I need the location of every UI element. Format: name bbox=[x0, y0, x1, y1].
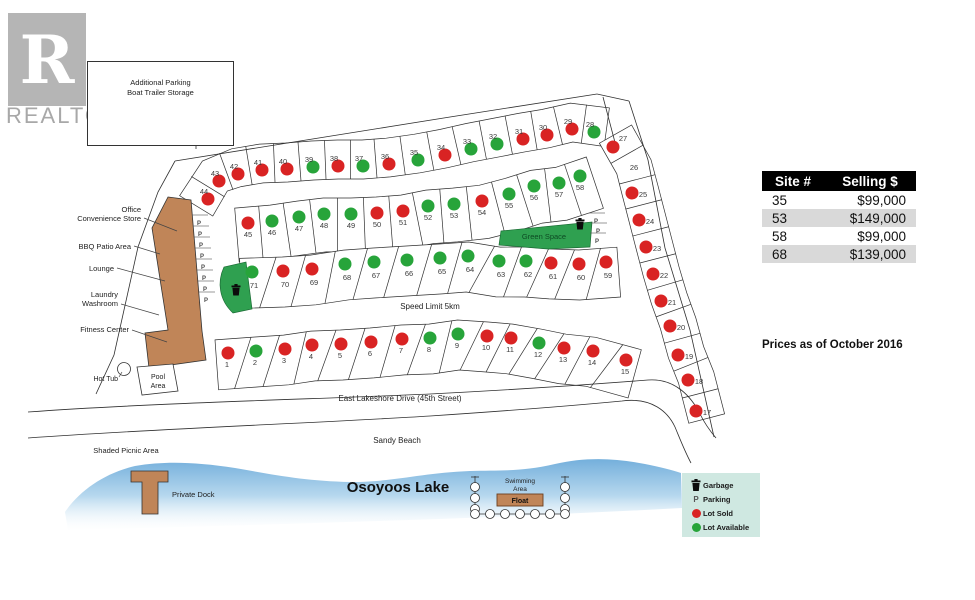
lot-number: 4 bbox=[309, 352, 313, 361]
lot-number: 33 bbox=[463, 137, 471, 146]
lot-status-dot bbox=[690, 405, 703, 418]
lounge-label: Lounge bbox=[89, 264, 114, 273]
lot-number: 24 bbox=[646, 217, 654, 226]
lot-status-dot bbox=[401, 254, 414, 267]
parking-icon: P bbox=[594, 219, 598, 225]
lot-number: 66 bbox=[405, 269, 413, 278]
additional-parking-line1: Additional Parking bbox=[88, 78, 233, 88]
laundry-washroom-label: Laundry bbox=[91, 290, 118, 299]
lot-number: 28 bbox=[586, 120, 594, 129]
lot-number: 59 bbox=[604, 271, 612, 280]
office-convenience-store-label: Office bbox=[122, 205, 141, 214]
lot-number: 56 bbox=[530, 193, 538, 202]
parking-icon: P bbox=[596, 229, 600, 235]
lot-number: 38 bbox=[330, 154, 338, 163]
hot-tub-label: Hot Tub bbox=[93, 376, 118, 383]
lot-status-dot bbox=[306, 263, 319, 276]
parking-icon: P bbox=[204, 298, 208, 304]
lot-status-dot bbox=[587, 345, 600, 358]
additional-parking-line2: Boat Trailer Storage bbox=[88, 88, 233, 98]
lot-status-dot bbox=[528, 180, 541, 193]
price-table: Site # Selling $ 35$99,00053$149,00058$9… bbox=[762, 171, 916, 263]
lot-number: 14 bbox=[588, 358, 596, 367]
osoyoos-lake-label: Osoyoos Lake bbox=[347, 479, 450, 496]
lot-status-dot bbox=[682, 374, 695, 387]
lot-number: 64 bbox=[466, 265, 474, 274]
lot-status-dot bbox=[655, 295, 668, 308]
shaded-picnic-area-label: Shaded Picnic Area bbox=[93, 446, 159, 455]
legend-label-garbage: Garbage bbox=[703, 481, 733, 490]
lot-status-dot bbox=[476, 195, 489, 208]
lot-status-dot bbox=[424, 332, 437, 345]
lot-number: 9 bbox=[455, 341, 459, 350]
prices-note: Prices as of October 2016 bbox=[762, 339, 903, 351]
lot-number: 35 bbox=[410, 148, 418, 157]
lot-number: 31 bbox=[515, 127, 523, 136]
lot-status-dot bbox=[371, 207, 384, 220]
lot-number: 60 bbox=[577, 273, 585, 282]
lot-number: 57 bbox=[555, 190, 563, 199]
price-table-row: 68$139,000 bbox=[762, 245, 916, 263]
lot-status-dot bbox=[266, 215, 279, 228]
lot-number: 15 bbox=[621, 367, 629, 376]
lot-status-dot bbox=[422, 200, 435, 213]
lot-status-dot bbox=[640, 241, 653, 254]
price-table-row: 53$149,000 bbox=[762, 209, 916, 227]
lot-number: 53 bbox=[450, 211, 458, 220]
lot-number: 32 bbox=[489, 132, 497, 141]
lot-number: 71 bbox=[250, 281, 258, 290]
lot-status-dot bbox=[573, 258, 586, 271]
lot-number: 55 bbox=[505, 201, 513, 210]
lot-number: 22 bbox=[660, 271, 668, 280]
lot-number: 65 bbox=[438, 267, 446, 276]
lot-number: 39 bbox=[305, 155, 313, 164]
lot-status-dot bbox=[339, 258, 352, 271]
legend-label-sold: Lot Sold bbox=[703, 509, 733, 518]
lot-number: 40 bbox=[279, 157, 287, 166]
bbq-patio-area-label: BBQ Patio Area bbox=[78, 242, 131, 251]
lot-status-dot bbox=[647, 268, 660, 281]
parking-icon: P bbox=[689, 495, 703, 504]
lot-number: 1 bbox=[225, 360, 229, 369]
lot-number: 8 bbox=[427, 345, 431, 354]
lot-number: 21 bbox=[668, 298, 676, 307]
lot-number: 17 bbox=[703, 408, 711, 417]
lot-number: 58 bbox=[576, 183, 584, 192]
lot-status-dot bbox=[481, 330, 494, 343]
lot-status-dot bbox=[434, 252, 447, 265]
lot-status-dot bbox=[505, 332, 518, 345]
map-legend: Garbage P Parking Lot Sold Lot Available bbox=[682, 473, 760, 537]
lot-number: 62 bbox=[524, 270, 532, 279]
lot-status-dot bbox=[242, 217, 255, 230]
lot-sold-icon bbox=[689, 509, 703, 518]
price-table-header-price: Selling $ bbox=[824, 171, 916, 191]
price-table-row: 58$99,000 bbox=[762, 227, 916, 245]
office-convenience-store-label: Convenience Store bbox=[77, 214, 141, 223]
lot-number: 49 bbox=[347, 221, 355, 230]
lot-status-dot bbox=[553, 177, 566, 190]
lot-status-dot bbox=[600, 256, 613, 269]
lot-number: 54 bbox=[478, 208, 486, 217]
lot-number: 43 bbox=[211, 169, 219, 178]
lot-number: 68 bbox=[343, 273, 351, 282]
legend-item-parking: P Parking bbox=[689, 492, 760, 506]
lot-number: 20 bbox=[677, 323, 685, 332]
lot-status-dot bbox=[574, 170, 587, 183]
hot-tub-circle bbox=[118, 363, 131, 376]
legend-item-garbage: Garbage bbox=[689, 478, 760, 492]
swimming-area-1-label: Swimming bbox=[505, 478, 535, 485]
lot-status-dot bbox=[368, 256, 381, 269]
lot-number: 42 bbox=[230, 162, 238, 171]
lot-number: 69 bbox=[310, 278, 318, 287]
site-number: 58 bbox=[762, 227, 824, 245]
corner-boundary bbox=[597, 94, 629, 101]
garbage-icon bbox=[689, 479, 703, 491]
lot-status-dot bbox=[493, 255, 506, 268]
selling-price: $149,000 bbox=[824, 209, 916, 227]
lot-number: 67 bbox=[372, 271, 380, 280]
lot-status-dot bbox=[545, 257, 558, 270]
pool-area-1-label: Pool bbox=[151, 374, 165, 381]
private-dock-label: Private Dock bbox=[172, 490, 215, 499]
lot-status-dot bbox=[626, 187, 639, 200]
site-plan-page: PPPPPPPPPPP 4443424140393837363534333231… bbox=[0, 0, 975, 600]
additional-parking-box: Additional Parking Boat Trailer Storage bbox=[87, 61, 234, 146]
lot-number: 26 bbox=[630, 163, 638, 172]
lot-number: 45 bbox=[244, 230, 252, 239]
lot-status-dot bbox=[462, 250, 475, 263]
lot-status-dot bbox=[664, 320, 677, 333]
lot-number: 48 bbox=[320, 221, 328, 230]
float-label: Float bbox=[512, 498, 529, 505]
parking-icon: P bbox=[595, 239, 599, 245]
laundry-washroom-label: Washroom bbox=[82, 299, 118, 308]
lot-number: 52 bbox=[424, 213, 432, 222]
selling-price: $139,000 bbox=[824, 245, 916, 263]
lot-number: 47 bbox=[295, 224, 303, 233]
lot-number: 70 bbox=[281, 280, 289, 289]
site-number: 68 bbox=[762, 245, 824, 263]
lot-status-dot bbox=[345, 208, 358, 221]
lot-status-dot bbox=[397, 205, 410, 218]
lot-status-dot bbox=[533, 337, 546, 350]
lot-number: 5 bbox=[338, 351, 342, 360]
lot-status-dot bbox=[250, 345, 263, 358]
lot-number: 44 bbox=[200, 187, 208, 196]
green-space-label: Green Space bbox=[522, 232, 566, 241]
pool-area-2-label: Area bbox=[151, 383, 166, 390]
lot-status-dot bbox=[503, 188, 516, 201]
lot-number: 63 bbox=[497, 270, 505, 279]
lot-status-dot bbox=[396, 333, 409, 346]
lot-number: 61 bbox=[549, 272, 557, 281]
site-number: 35 bbox=[762, 191, 824, 209]
lot-available-icon bbox=[689, 523, 703, 532]
lot-number: 37 bbox=[355, 154, 363, 163]
lot-status-dot bbox=[607, 141, 620, 154]
lot-number: 50 bbox=[373, 220, 381, 229]
lot-status-dot bbox=[293, 211, 306, 224]
lot-number: 30 bbox=[539, 123, 547, 132]
speed-limit-label: Speed Limit 5km bbox=[400, 302, 460, 311]
lot-status-dot bbox=[318, 208, 331, 221]
lot-number: 18 bbox=[695, 377, 703, 386]
lot-status-dot bbox=[246, 266, 259, 279]
price-table-row: 35$99,000 bbox=[762, 191, 916, 209]
selling-price: $99,000 bbox=[824, 191, 916, 209]
legend-item-sold: Lot Sold bbox=[689, 506, 760, 520]
laundry-washroom-callout-line bbox=[121, 304, 159, 315]
lot-number: 51 bbox=[399, 218, 407, 227]
lot-number: 36 bbox=[381, 152, 389, 161]
lot-number: 10 bbox=[482, 343, 490, 352]
lot-number: 12 bbox=[534, 350, 542, 359]
lot-status-dot bbox=[558, 342, 571, 355]
swimming-area-2-label: Area bbox=[513, 486, 527, 493]
legend-label-parking: Parking bbox=[703, 495, 731, 504]
lot-number: 6 bbox=[368, 349, 372, 358]
legend-item-available: Lot Available bbox=[689, 520, 760, 534]
lot-number: 46 bbox=[268, 228, 276, 237]
east-lakeshore-drive-label: East Lakeshore Drive (45th Street) bbox=[338, 394, 462, 403]
selling-price: $99,000 bbox=[824, 227, 916, 245]
lot-status-dot bbox=[633, 214, 646, 227]
lot-status-dot bbox=[279, 343, 292, 356]
lot-status-dot bbox=[222, 347, 235, 360]
lot-number: 19 bbox=[685, 352, 693, 361]
price-table-body: 35$99,00053$149,00058$99,00068$139,000 bbox=[762, 191, 916, 263]
lot-number: 13 bbox=[559, 355, 567, 364]
lot-number: 11 bbox=[506, 345, 514, 354]
lot-status-dot bbox=[365, 336, 378, 349]
lot-status-dot bbox=[452, 328, 465, 341]
lot-number: 34 bbox=[437, 143, 445, 152]
lounge-callout-line bbox=[117, 268, 165, 281]
sandy-beach-label: Sandy Beach bbox=[373, 436, 421, 445]
lot-number: 3 bbox=[282, 356, 286, 365]
lot-number: 41 bbox=[254, 158, 262, 167]
lot-status-dot bbox=[306, 339, 319, 352]
lot-number: 29 bbox=[564, 117, 572, 126]
site-number: 53 bbox=[762, 209, 824, 227]
lot-number: 27 bbox=[619, 134, 627, 143]
realtor-logo: R bbox=[8, 13, 86, 106]
lot-number: 7 bbox=[399, 346, 403, 355]
lot-status-dot bbox=[520, 255, 533, 268]
lot-status-dot bbox=[448, 198, 461, 211]
fitness-center-label: Fitness Center bbox=[80, 325, 129, 334]
lot-status-dot bbox=[335, 338, 348, 351]
lot-status-dot bbox=[277, 265, 290, 278]
realtor-logo-letter: R bbox=[20, 27, 75, 93]
lot-status-dot bbox=[672, 349, 685, 362]
lot-status-dot bbox=[620, 354, 633, 367]
lot-row-outline bbox=[215, 320, 641, 398]
lot-number: 25 bbox=[639, 190, 647, 199]
lot-number: 2 bbox=[253, 358, 257, 367]
legend-label-available: Lot Available bbox=[703, 523, 749, 532]
price-table-header-site: Site # bbox=[762, 171, 824, 191]
lot-number: 23 bbox=[653, 244, 661, 253]
